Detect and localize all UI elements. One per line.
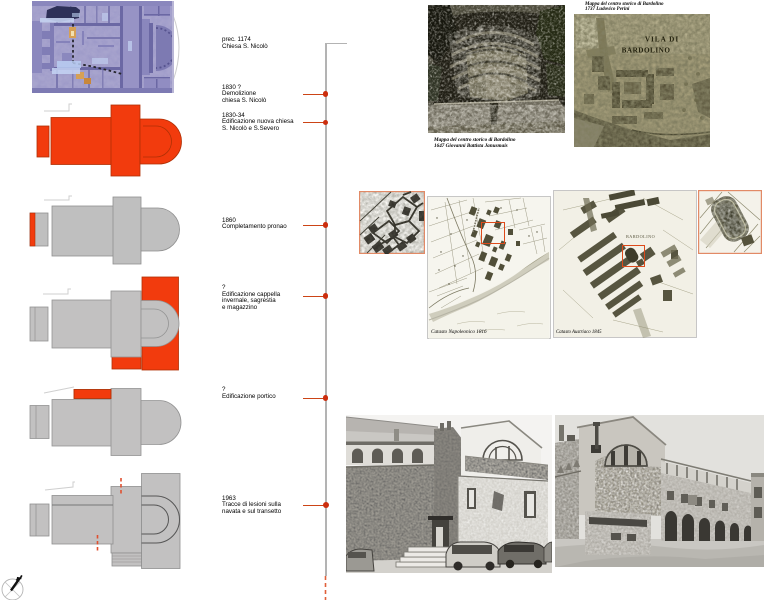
svg-text:BARDOLINO: BARDOLINO xyxy=(622,47,671,55)
svg-text:BARDOLINO: BARDOLINO xyxy=(626,234,655,239)
svg-text:VILA DI: VILA DI xyxy=(645,36,679,44)
